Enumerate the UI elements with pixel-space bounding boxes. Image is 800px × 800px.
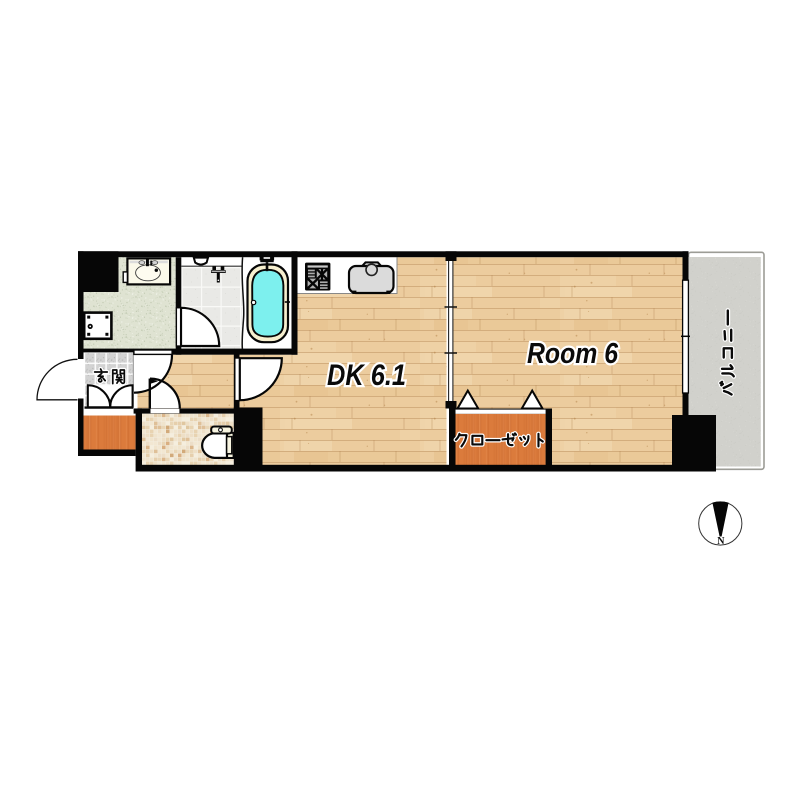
- svg-text:N: N: [717, 536, 725, 547]
- svg-text:Room 6: Room 6: [527, 338, 618, 370]
- svg-text:DK 6.1: DK 6.1: [327, 359, 406, 392]
